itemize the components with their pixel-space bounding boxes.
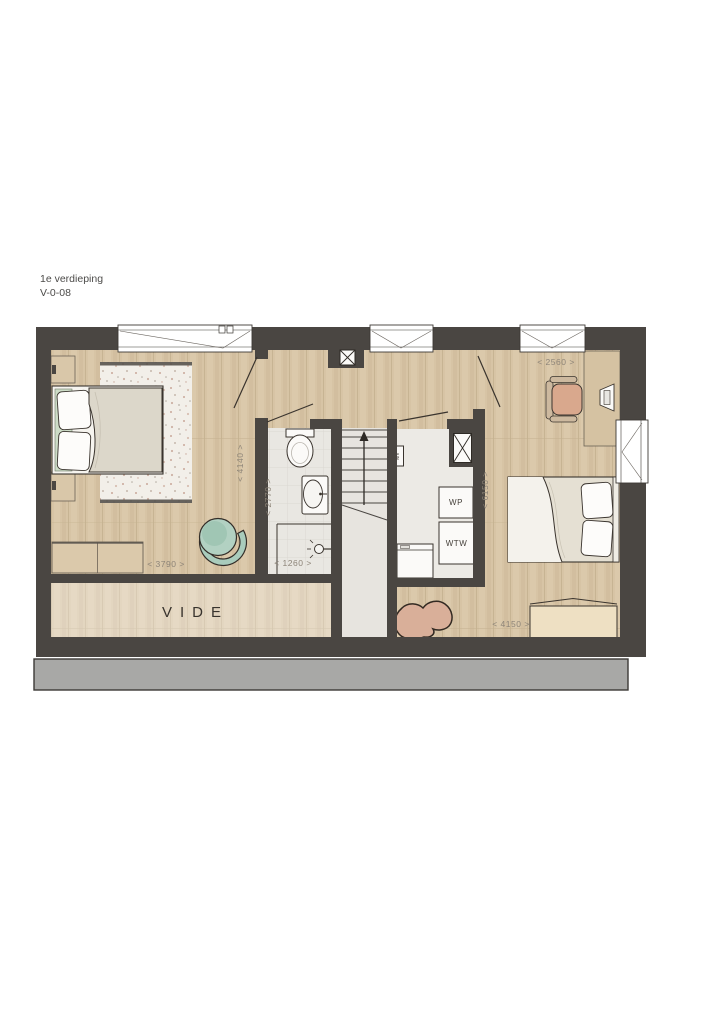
wtw-unit: WTW	[439, 522, 474, 564]
dim-bedroom1-depth: < 4140 >	[235, 444, 245, 482]
nightstand-handle-top	[52, 365, 56, 374]
wtw-label: WTW	[446, 539, 468, 548]
wall-stair-right	[387, 419, 397, 640]
vide-label: VIDE	[162, 604, 229, 621]
wall-left	[36, 327, 51, 657]
toilet-bowl	[287, 435, 313, 467]
wall-stair-left	[331, 419, 342, 640]
dim-bedroom2-depth: < 6150 >	[480, 471, 490, 509]
bed-1	[52, 386, 163, 474]
dim-bathroom-width: < 1260 >	[274, 558, 312, 568]
wp-unit: WP	[439, 487, 473, 518]
plan-title: 1e verdieping	[40, 273, 103, 285]
washing-machine	[397, 544, 433, 578]
drawing-title: 1e verdieping V-0-08	[40, 273, 103, 299]
wp-label: WP	[449, 498, 463, 507]
window-bedroom2-side	[616, 420, 648, 483]
rug-fringe-top	[100, 362, 192, 366]
dim-bedroom2-width-top: < 2560 >	[537, 357, 575, 367]
bed-2	[508, 477, 619, 562]
bed-2-headboard	[613, 477, 619, 562]
washbasin-tap	[319, 493, 322, 496]
bed-1-pillow-bottom	[57, 431, 91, 471]
roof-edge-band	[34, 659, 628, 690]
plan-code: V-0-08	[40, 287, 71, 299]
window-bedroom2-top	[520, 325, 585, 352]
wall-vide	[51, 574, 332, 583]
floor-plan-page: 1e verdieping V-0-08	[0, 0, 701, 1024]
dim-bathroom-depth: < 2770 >	[263, 478, 273, 516]
shaft-top	[340, 350, 355, 365]
bed-2-pillow-bottom	[581, 520, 613, 557]
dim-bedroom2-width-bottom: < 4150 >	[492, 619, 530, 629]
dim-bedroom1-width: < 3790 >	[147, 559, 185, 569]
bed-1-pillow-top	[57, 390, 92, 430]
lounge-chair-cushion	[202, 521, 227, 546]
nightstand-handle-bottom	[52, 481, 56, 490]
bed-2-pillow-top	[581, 482, 613, 519]
dresser	[52, 542, 143, 573]
window-bedroom1	[118, 325, 252, 352]
rug-fringe-bottom	[100, 500, 192, 504]
shaft-tech	[454, 434, 472, 463]
window-hall	[370, 325, 433, 352]
wall-tech-bottom	[387, 578, 485, 587]
floor-plan-canvas: 1e verdieping V-0-08	[0, 0, 701, 1024]
wall-right	[620, 327, 646, 657]
